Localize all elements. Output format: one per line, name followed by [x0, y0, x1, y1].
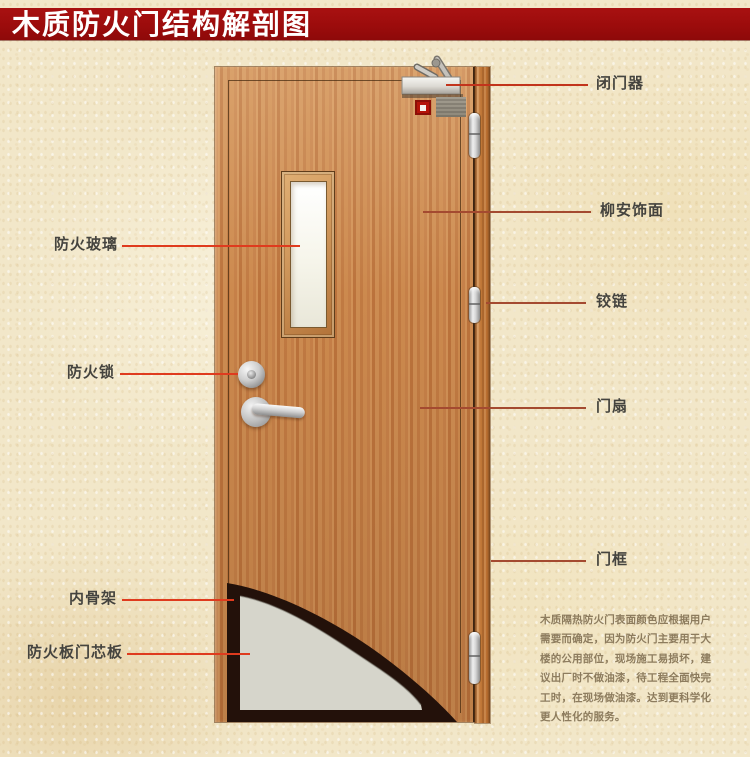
label-core-board: 防火板门芯板	[27, 643, 123, 663]
leader-line-inner-skeleton	[122, 599, 234, 601]
leader-line-veneer	[423, 211, 591, 213]
label-fire-lock: 防火锁	[67, 363, 115, 383]
leader-line-core-board	[127, 653, 250, 655]
leader-line-door-leaf	[420, 407, 586, 409]
note-line: 楼的公用部位，现场施工易损坏，建	[540, 650, 716, 669]
note-line: 木质隔热防火门表面颜色应根据用户	[540, 611, 716, 630]
label-door-leaf: 门扇	[596, 397, 628, 417]
label-fire-glass: 防火玻璃	[54, 235, 118, 255]
fire-glass-pane	[290, 181, 327, 328]
label-veneer: 柳安饰面	[600, 201, 664, 221]
core-board-shape	[240, 596, 422, 710]
leader-line-fire-lock	[120, 373, 238, 375]
hinge-top-icon	[469, 113, 480, 158]
leader-line-fire-glass	[122, 245, 300, 247]
leader-line-door-frame	[491, 560, 586, 562]
hinge-middle-icon	[469, 287, 480, 323]
title-banner: 木质防火门结构解剖图	[0, 8, 750, 40]
label-inner-skeleton: 内骨架	[69, 589, 117, 609]
note-line: 议出厂时不做油漆，待工程全面快完	[540, 669, 716, 688]
leader-line-door-closer	[446, 84, 588, 86]
fire-lock-cylinder	[238, 361, 265, 388]
closer-label-plate	[436, 97, 466, 117]
label-door-closer: 闭门器	[596, 74, 644, 94]
door-closer-icon	[395, 55, 475, 103]
note-line: 更人性化的服务。	[540, 708, 716, 727]
door-core-cutaway	[215, 575, 473, 722]
door-frame-strip	[475, 67, 490, 723]
label-door-frame: 门框	[596, 550, 628, 570]
note-line: 需要而确定，因为防火门主要用于大	[540, 630, 716, 649]
page-title: 木质防火门结构解剖图	[0, 8, 750, 41]
description-note: 木质隔热防火门表面颜色应根据用户 需要而确定，因为防火门主要用于大 楼的公用部位…	[540, 611, 716, 727]
label-hinge: 铰链	[596, 292, 628, 312]
note-line: 工时，在现场做油漆。达到更科学化	[540, 689, 716, 708]
leader-line-hinge	[486, 302, 586, 304]
closer-indicator-badge	[415, 100, 431, 115]
